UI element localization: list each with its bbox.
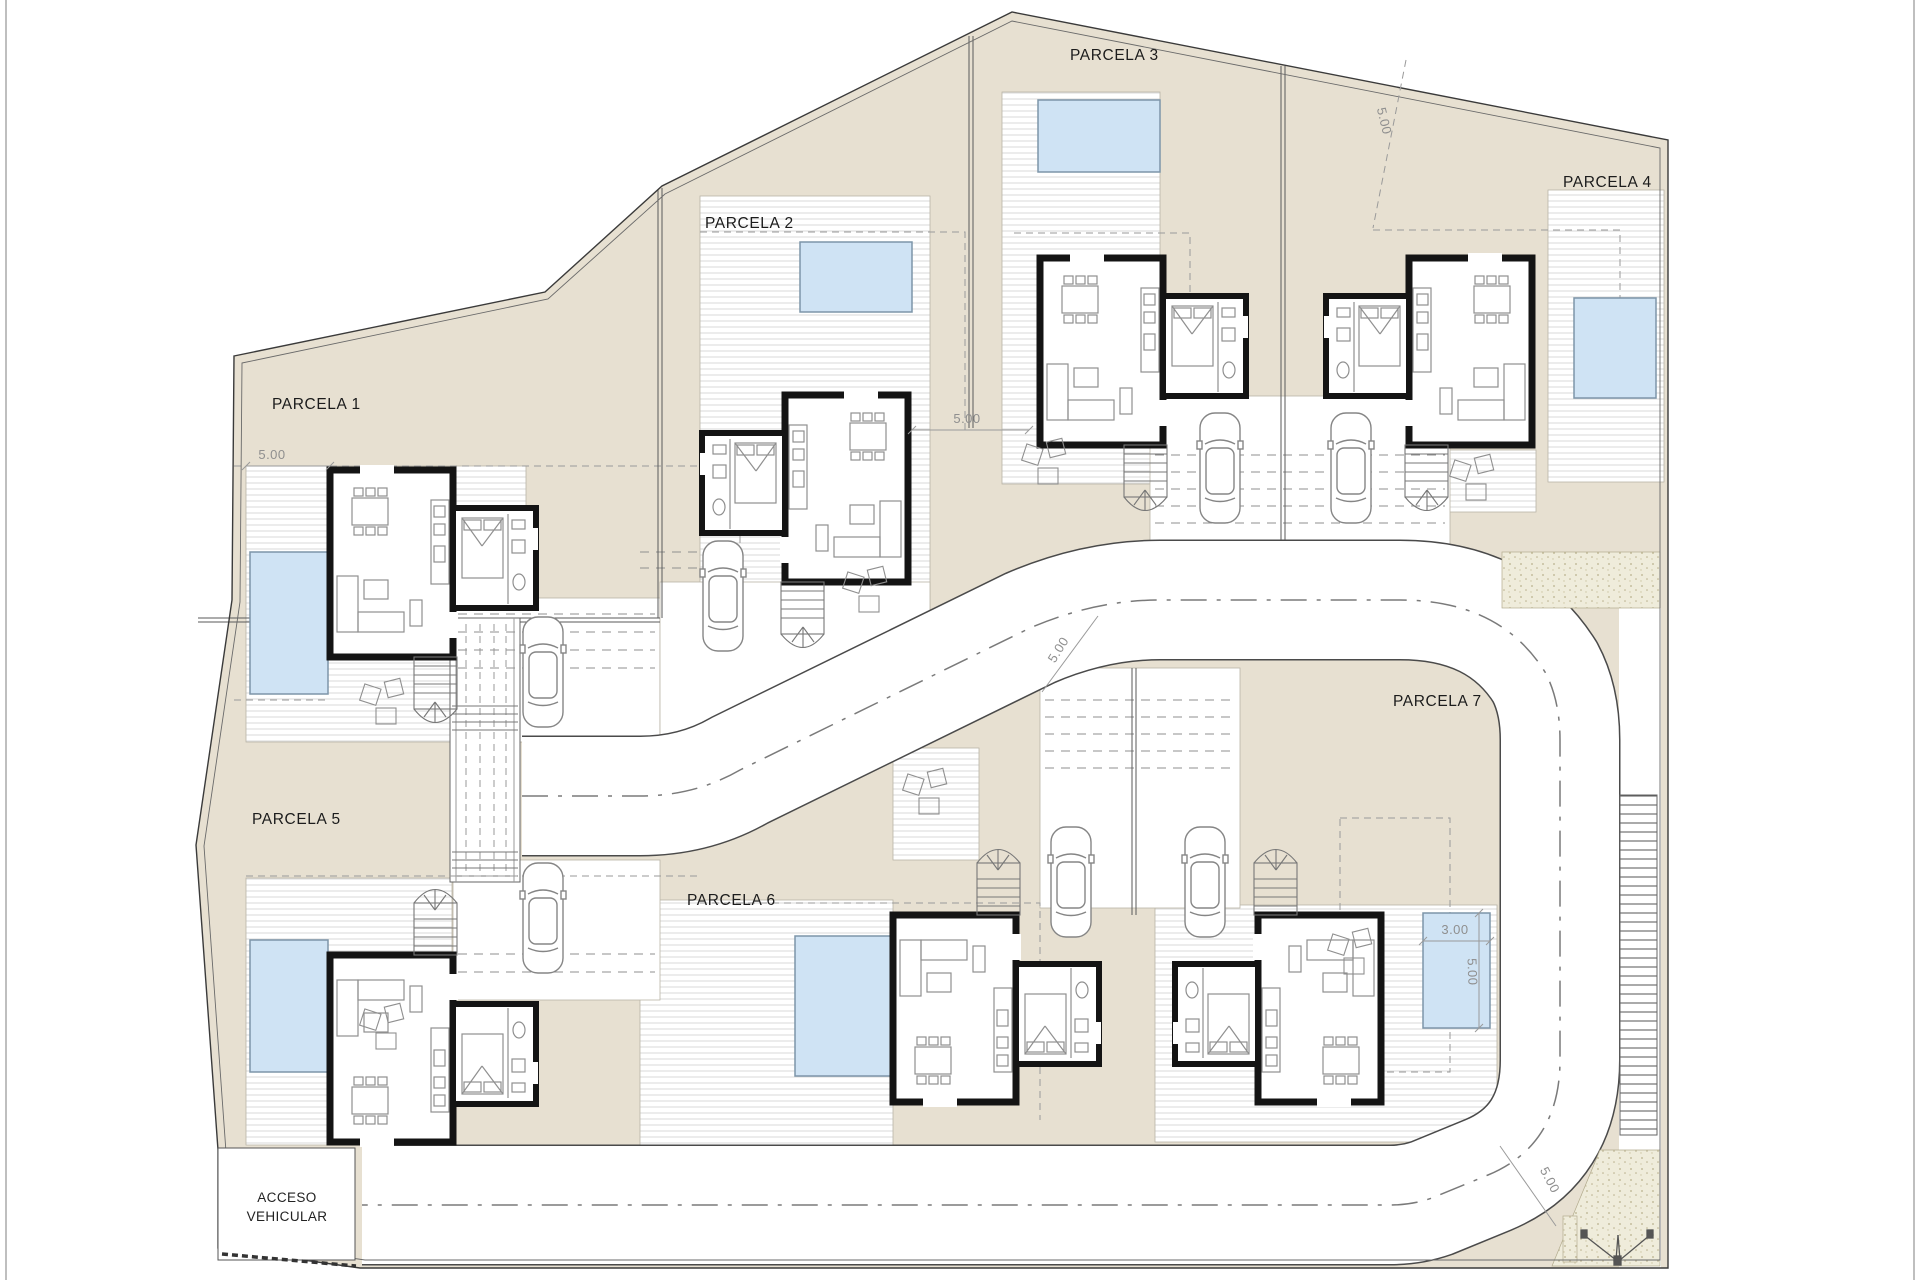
car-parcel-4 xyxy=(1328,413,1374,523)
access-label-line2: VEHICULAR xyxy=(247,1209,328,1224)
pool-parcel-6 xyxy=(795,936,891,1076)
car-parcel-3 xyxy=(1197,413,1243,523)
parcel-5-label: PARCELA 5 xyxy=(252,811,341,828)
parcel-4-label: PARCELA 4 xyxy=(1563,174,1652,191)
dim-setback-p3: 5.00 xyxy=(953,411,980,426)
parcel-3-label: PARCELA 3 xyxy=(1070,47,1159,64)
sand-gate-sliver xyxy=(1563,1216,1577,1262)
pool-parcel-4 xyxy=(1574,298,1656,398)
pool-parcel-3 xyxy=(1038,100,1160,172)
pool-parcel-5 xyxy=(250,940,328,1072)
site-plan-sheet: ACCESO VEHICULAR 5.00 5.00 5.00 5.00 xyxy=(0,0,1920,1280)
deck-parcel-4-lounge xyxy=(1440,450,1536,512)
car-parcel-7 xyxy=(1182,827,1228,937)
parcel-6-label: PARCELA 6 xyxy=(687,892,776,909)
parcel-7-label: PARCELA 7 xyxy=(1393,693,1482,710)
deck-parcel-6-lounge xyxy=(893,748,979,860)
dim-setback-p1: 5.00 xyxy=(258,447,285,462)
access-label-line1: ACCESO xyxy=(257,1190,316,1205)
sand-east-strip xyxy=(1502,552,1660,608)
car-parcel-6 xyxy=(1048,827,1094,937)
dim-pool-width: 3.00 xyxy=(1441,922,1468,937)
stair-strip-east xyxy=(1620,795,1657,1135)
pool-parcel-2 xyxy=(800,242,912,312)
parcel-1-label: PARCELA 1 xyxy=(272,396,361,413)
parcel-2-label: PARCELA 2 xyxy=(705,215,794,232)
dim-pool-length: 5.00 xyxy=(1465,958,1481,986)
pool-parcel-1 xyxy=(250,552,328,694)
site-plan-drawing: ACCESO VEHICULAR 5.00 5.00 5.00 5.00 xyxy=(0,0,1920,1280)
car-parcel-1 xyxy=(520,617,566,727)
shared-ramp-corridor xyxy=(450,618,520,882)
car-parcel-5 xyxy=(520,863,566,973)
car-parcel-2 xyxy=(700,541,746,651)
